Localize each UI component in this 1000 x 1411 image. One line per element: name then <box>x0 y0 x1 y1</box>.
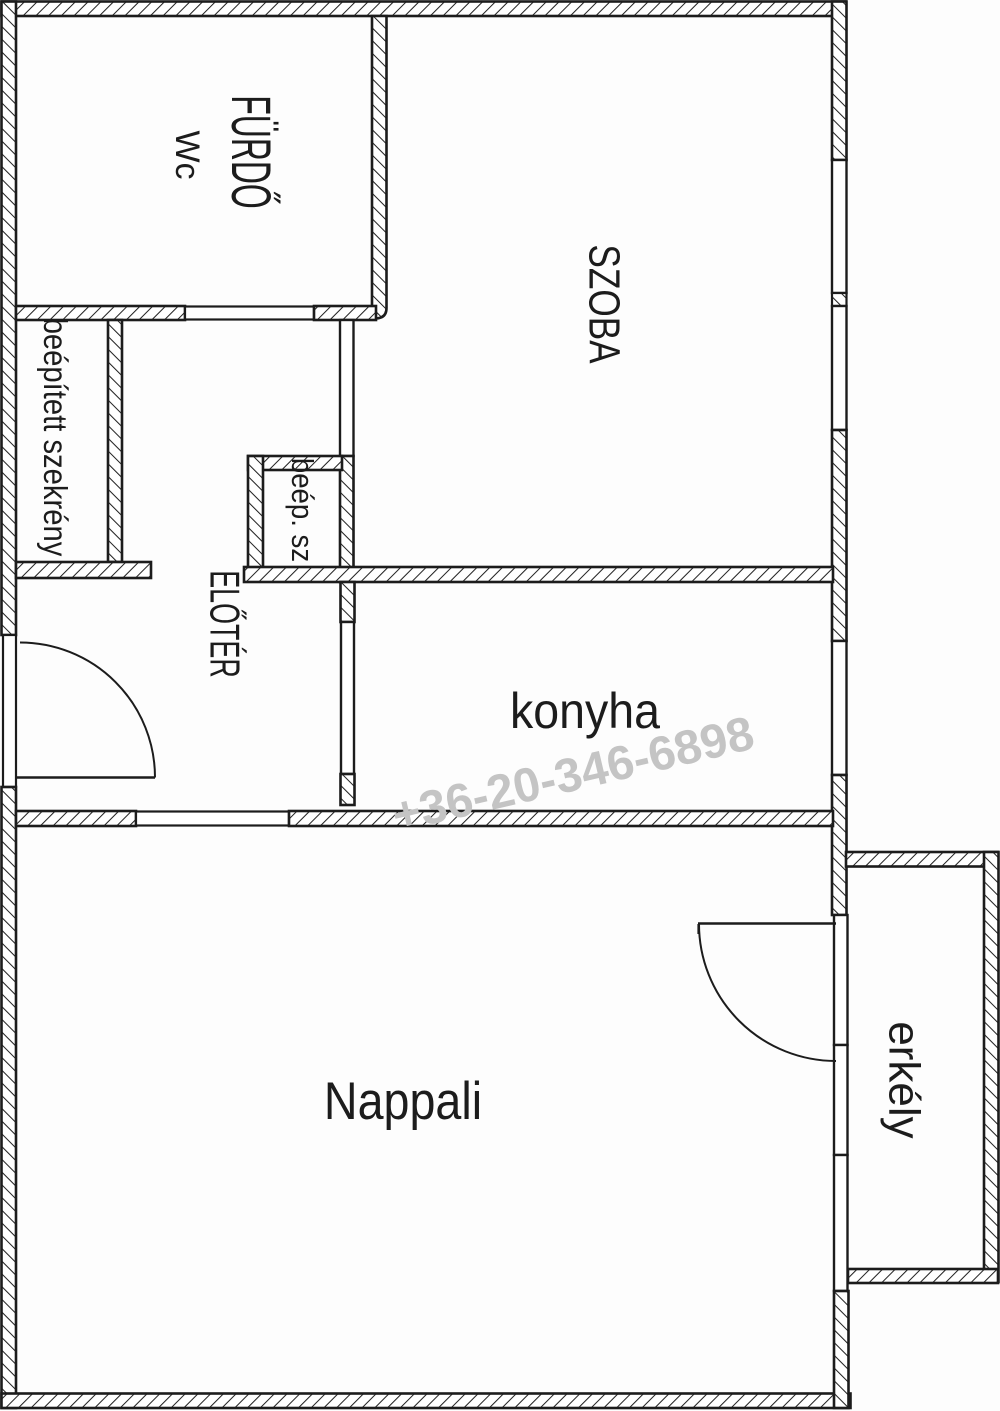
svg-text:SZOBA: SZOBA <box>580 244 629 364</box>
svg-text:erkély: erkély <box>880 1021 929 1138</box>
svg-text:Wc: Wc <box>168 130 206 179</box>
svg-text:FÜRDŐ: FÜRDŐ <box>220 95 283 208</box>
svg-text:Nappali: Nappali <box>324 1071 482 1130</box>
svg-text:konyha: konyha <box>510 683 660 739</box>
svg-text:beép. sz: beép. sz <box>285 458 320 562</box>
svg-text:beépített szekrény: beépített szekrény <box>36 318 73 557</box>
svg-text:ELŐTÉR: ELŐTÉR <box>201 570 247 678</box>
